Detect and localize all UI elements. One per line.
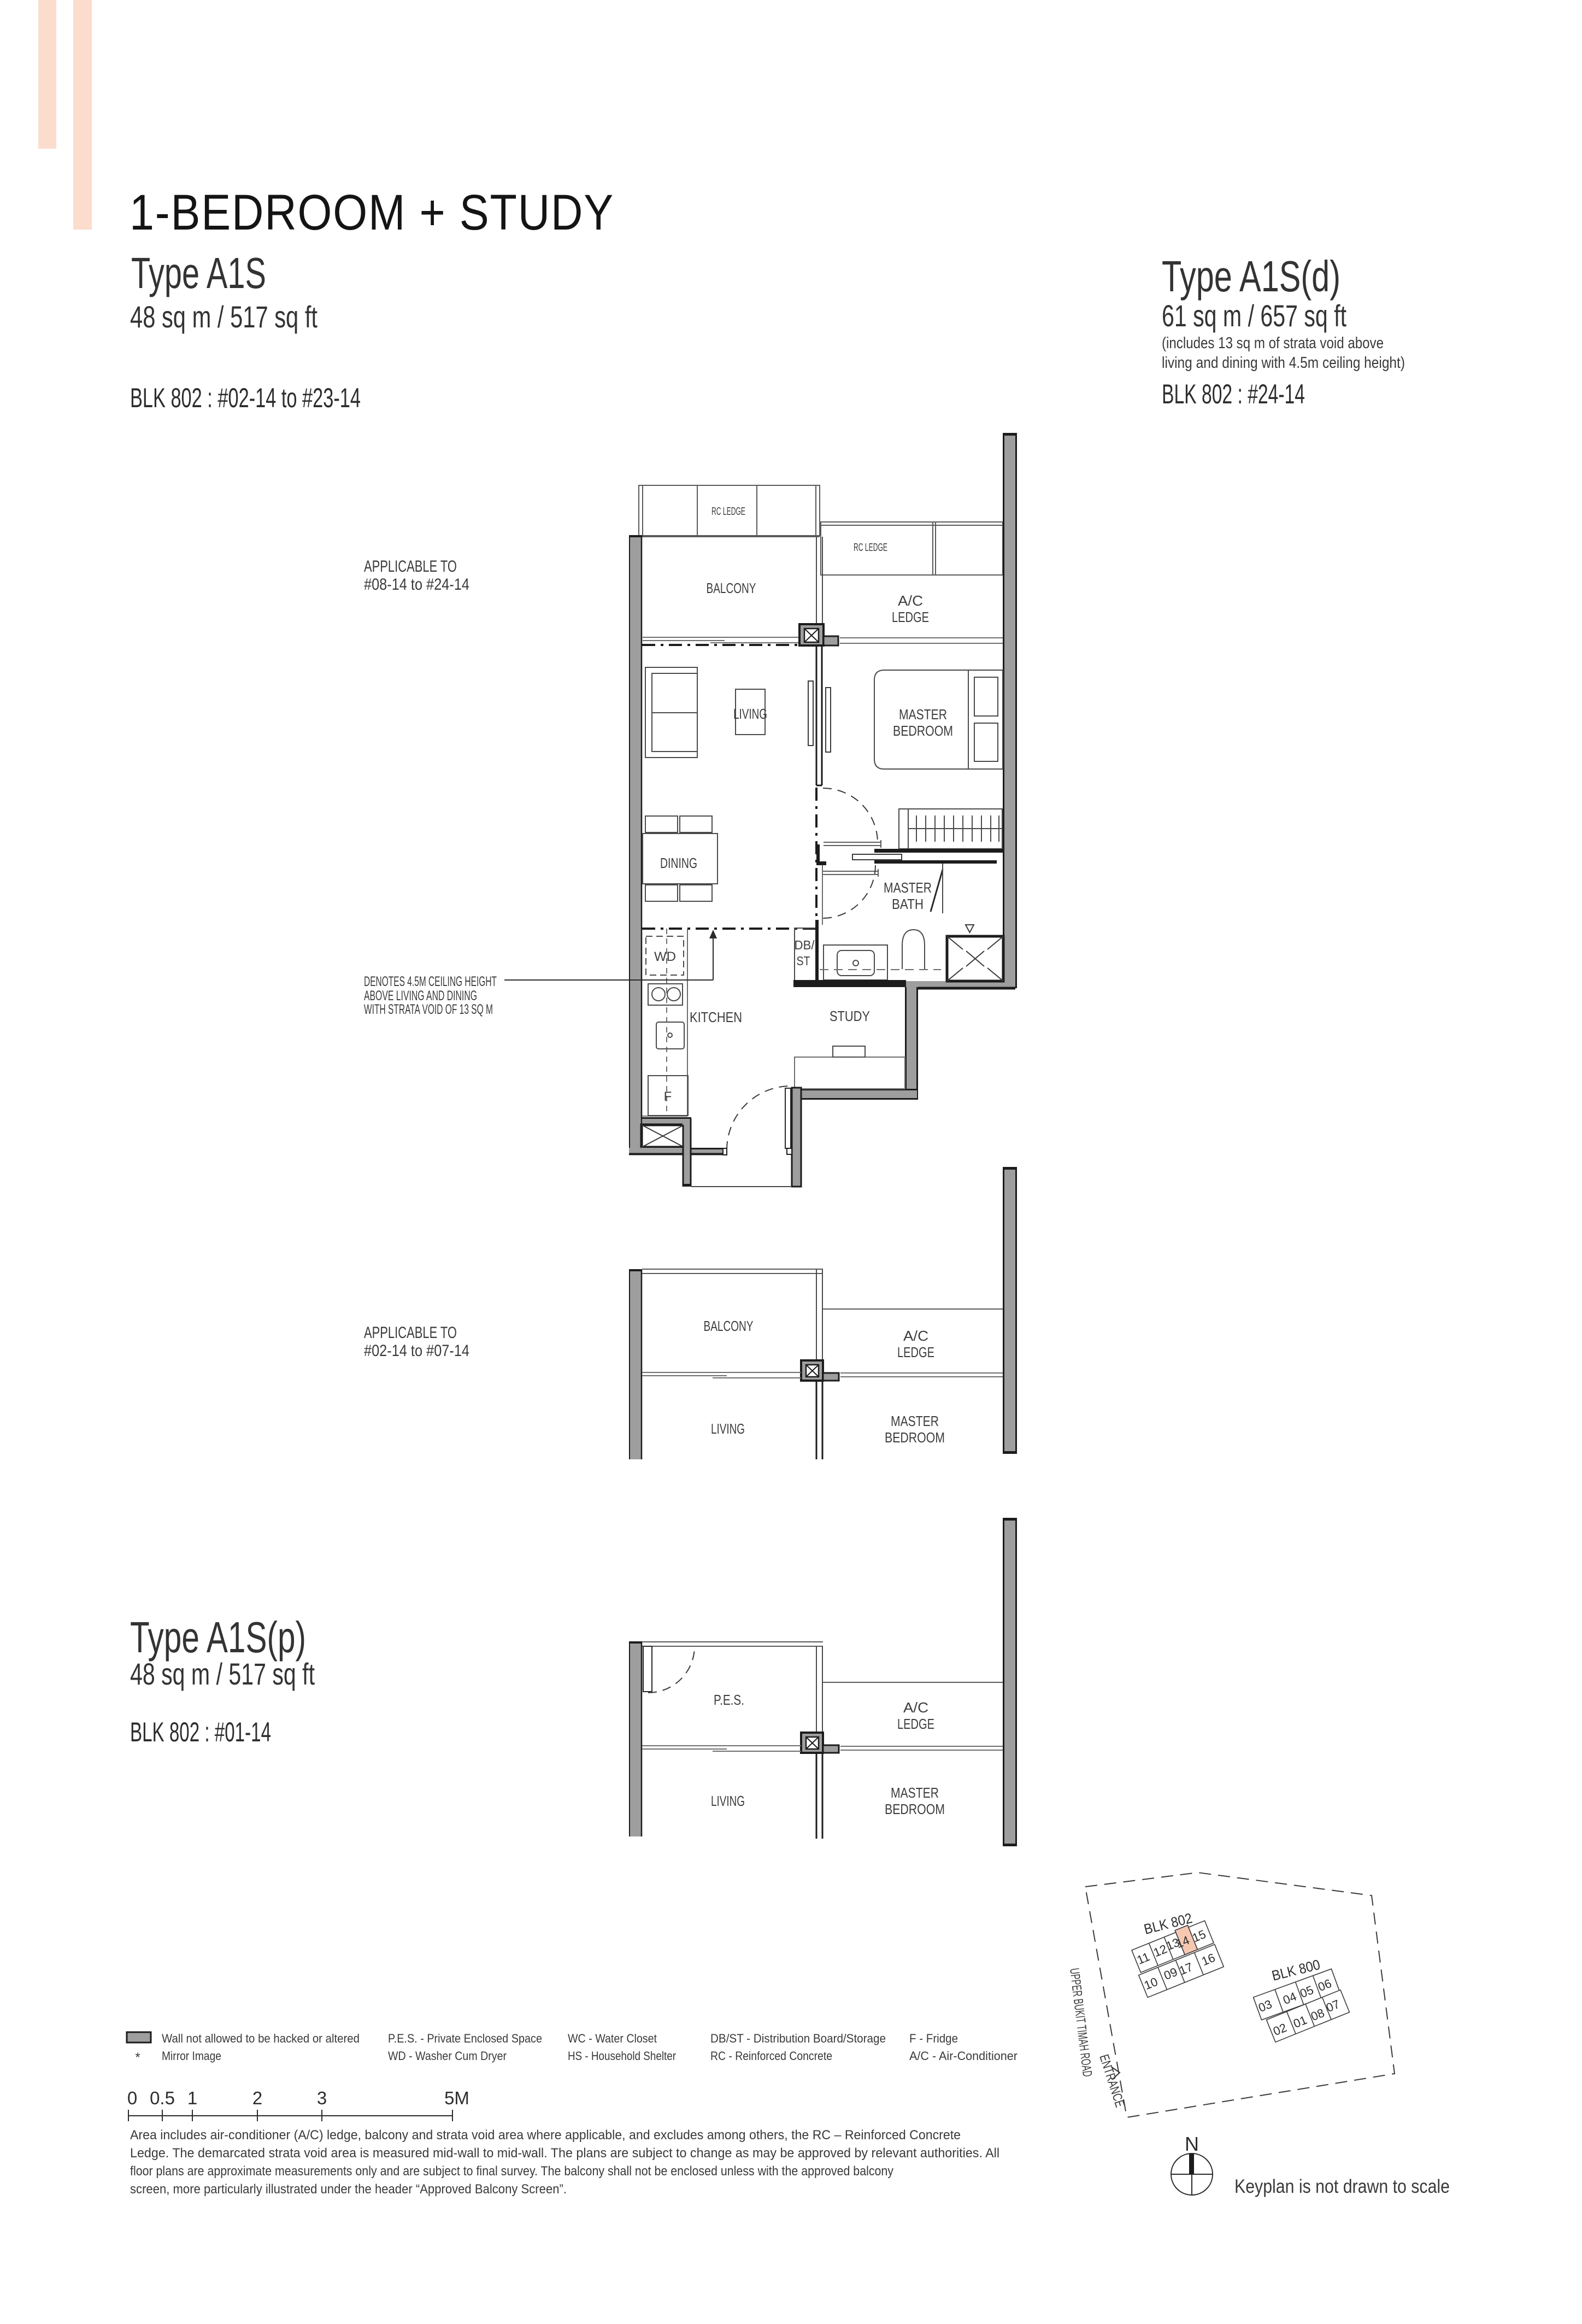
svg-text:A/C - Air-Conditioner: A/C - Air-Conditioner: [909, 2049, 1018, 2063]
svg-text:RC LEDGE: RC LEDGE: [711, 506, 745, 518]
svg-text:1-BEDROOM + STUDY: 1-BEDROOM + STUDY: [130, 185, 614, 240]
svg-text:BALCONY: BALCONY: [707, 580, 756, 596]
svg-text:screen, more particularly illu: screen, more particularly illustrated un…: [130, 2182, 567, 2197]
svg-text:DENOTES 4.5M CEILING HEIGHT: DENOTES 4.5M CEILING HEIGHT: [364, 974, 497, 989]
svg-text:MASTER: MASTER: [891, 1413, 939, 1429]
svg-text:DB/: DB/: [795, 938, 815, 952]
svg-text:#08-14 to #24-14: #08-14 to #24-14: [364, 576, 469, 594]
svg-text:A/C: A/C: [903, 1328, 928, 1344]
svg-text:2: 2: [252, 2088, 262, 2108]
svg-text:MASTER: MASTER: [899, 706, 947, 723]
svg-text:Keyplan is not drawn to scale: Keyplan is not drawn to scale: [1234, 2176, 1450, 2197]
svg-text:DB/ST - Distribution Board/Sto: DB/ST - Distribution Board/Storage: [710, 2032, 886, 2045]
svg-text:48 sq m / 517 sq ft: 48 sq m / 517 sq ft: [130, 300, 317, 334]
svg-text:BEDROOM: BEDROOM: [885, 1801, 945, 1817]
svg-text:living and dining with 4.5m ce: living and dining with 4.5m ceiling heig…: [1162, 354, 1405, 372]
svg-text:ABOVE LIVING AND DINING: ABOVE LIVING AND DINING: [364, 988, 477, 1003]
svg-text:A/C: A/C: [903, 1699, 928, 1716]
svg-text:BLK 802 : #24-14: BLK 802 : #24-14: [1162, 379, 1305, 409]
svg-text:APPLICABLE TO: APPLICABLE TO: [364, 557, 457, 576]
svg-text:BEDROOM: BEDROOM: [893, 723, 953, 739]
svg-text:HS - Household Shelter: HS - Household Shelter: [568, 2049, 676, 2063]
svg-text:Type A1S(d): Type A1S(d): [1162, 252, 1340, 301]
svg-text:0: 0: [127, 2088, 137, 2108]
svg-text:WD: WD: [654, 949, 676, 964]
svg-text:48 sq m / 517 sq ft: 48 sq m / 517 sq ft: [130, 1657, 315, 1691]
svg-text:DINING: DINING: [660, 855, 697, 871]
svg-text:61 sq m / 657 sq ft: 61 sq m / 657 sq ft: [1162, 298, 1346, 333]
svg-text:BALCONY: BALCONY: [704, 1318, 754, 1334]
svg-text:LIVING: LIVING: [711, 1421, 745, 1437]
svg-text:Ledge. The demarcated strata v: Ledge. The demarcated strata void area i…: [130, 2146, 999, 2161]
svg-text:Area includes air-conditioner: Area includes air-conditioner (A/C) ledg…: [130, 2128, 961, 2143]
svg-text:LEDGE: LEDGE: [897, 1344, 934, 1360]
svg-text:APPLICABLE TO: APPLICABLE TO: [364, 1324, 457, 1342]
svg-text:A/C: A/C: [898, 592, 923, 609]
svg-text:BATH: BATH: [892, 896, 924, 912]
svg-text:0.5: 0.5: [150, 2088, 175, 2108]
svg-text:1: 1: [187, 2088, 197, 2108]
svg-text:LEDGE: LEDGE: [897, 1716, 934, 1732]
svg-text:floor plans are approximate me: floor plans are approximate measurements…: [130, 2164, 893, 2179]
svg-text:LEDGE: LEDGE: [892, 609, 929, 625]
svg-text:P.E.S. - Private Enclosed Spac: P.E.S. - Private Enclosed Space: [388, 2032, 542, 2045]
svg-text:WD - Washer Cum Dryer: WD - Washer Cum Dryer: [388, 2049, 507, 2063]
svg-text:Wall not allowed to be hacked: Wall not allowed to be hacked or altered: [162, 2032, 360, 2045]
svg-text:MASTER: MASTER: [891, 1785, 939, 1801]
svg-text:ST: ST: [797, 954, 810, 968]
svg-text:MASTER: MASTER: [884, 879, 932, 896]
svg-text:Type A1S: Type A1S: [131, 249, 266, 297]
svg-text:(includes 13 sq m of strata vo: (includes 13 sq m of strata void above: [1162, 334, 1384, 352]
svg-text:3: 3: [317, 2088, 327, 2108]
svg-text:BLK 802 : #01-14: BLK 802 : #01-14: [130, 1717, 271, 1747]
svg-text:BEDROOM: BEDROOM: [885, 1429, 945, 1446]
svg-text:WC - Water Closet: WC - Water Closet: [568, 2032, 657, 2045]
svg-text:5M: 5M: [444, 2088, 469, 2108]
svg-text:P.E.S.: P.E.S.: [714, 1692, 744, 1708]
svg-text:LIVING: LIVING: [733, 706, 767, 722]
svg-text:F - Fridge: F - Fridge: [909, 2032, 958, 2045]
svg-text:WITH STRATA VOID OF 13 SQ M: WITH STRATA VOID OF 13 SQ M: [364, 1002, 493, 1017]
svg-text:RC - Reinforced Concrete: RC - Reinforced Concrete: [710, 2049, 832, 2063]
svg-text:F: F: [664, 1089, 672, 1104]
svg-text:N: N: [1185, 2133, 1199, 2155]
svg-text:#02-14 to #07-14: #02-14 to #07-14: [364, 1342, 469, 1360]
svg-text:Type A1S(p): Type A1S(p): [130, 1613, 306, 1662]
svg-text:STUDY: STUDY: [830, 1008, 870, 1024]
svg-text:LIVING: LIVING: [711, 1793, 745, 1809]
svg-text:Mirror Image: Mirror Image: [162, 2049, 221, 2063]
svg-text:KITCHEN: KITCHEN: [690, 1009, 742, 1025]
svg-text:*: *: [135, 2050, 140, 2065]
svg-text:RC LEDGE: RC LEDGE: [854, 542, 887, 554]
svg-text:BLK 802 : #02-14 to #23-14: BLK 802 : #02-14 to #23-14: [130, 383, 361, 413]
